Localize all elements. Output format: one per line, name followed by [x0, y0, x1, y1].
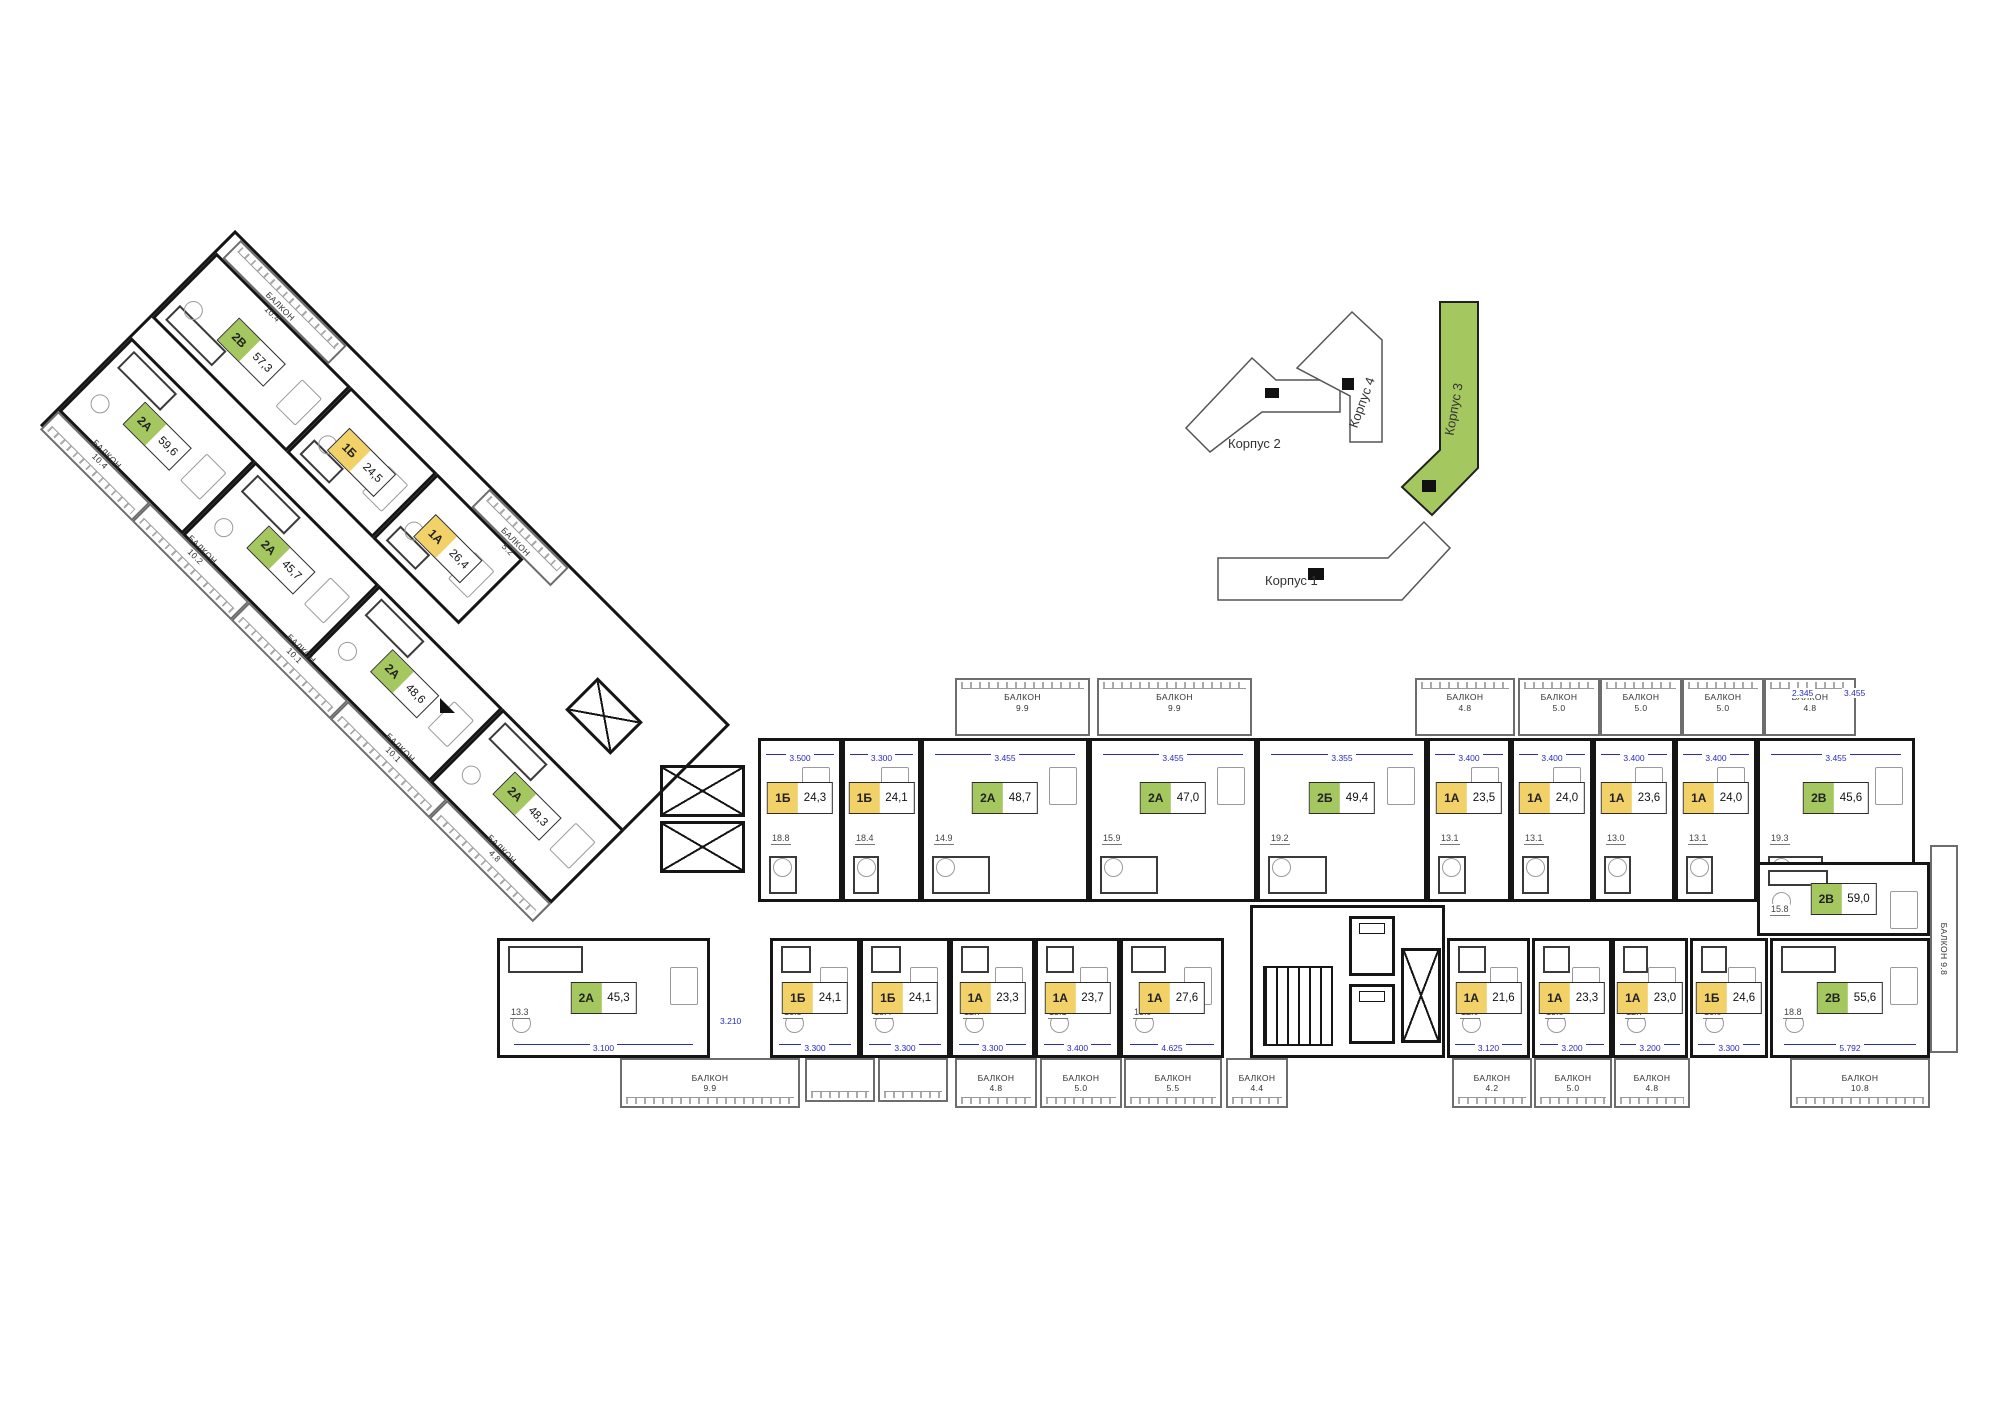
unit-cell-top-0[interactable]: 3.50018.81Б24,3	[758, 738, 842, 902]
bathroom-partition	[1686, 856, 1713, 894]
bathroom-partition	[508, 946, 583, 973]
unit-type-badge: 2А48,6	[370, 649, 440, 719]
balcony-label: БАЛКОН 9.8	[1939, 923, 1949, 976]
balcony: БАЛКОН4.2	[1452, 1058, 1532, 1108]
unit-area: 45,6	[1834, 783, 1868, 813]
dimension-label: 3.120	[1455, 1038, 1521, 1050]
unit-type-code: 2В	[1804, 783, 1834, 813]
minimap-core-icon	[1422, 480, 1436, 492]
bathroom-partition	[1701, 946, 1727, 973]
balcony-label: БАЛКОН5.0	[1602, 692, 1680, 713]
unit-type-code: 1Б	[783, 983, 813, 1013]
bathroom-partition	[241, 475, 301, 535]
bathroom-partition	[853, 856, 879, 894]
unit-area: 23,0	[1648, 983, 1682, 1013]
unit-cell-top-7[interactable]: 3.40013.01А23,6	[1593, 738, 1675, 902]
unit-type-code: 1А	[1540, 983, 1570, 1013]
room-area-label: 13.3	[510, 1007, 530, 1019]
unit-type-badge: 2В55,6	[1817, 982, 1883, 1014]
minimap-building-korpus-4[interactable]	[1297, 312, 1382, 442]
unit-area: 24,6	[1727, 983, 1761, 1013]
dimension-label: 3.210	[718, 1016, 743, 1026]
unit-area: 23,7	[1075, 983, 1109, 1013]
unit-area: 24,1	[879, 783, 913, 813]
dimension-label: 3.300	[1698, 1038, 1760, 1050]
dimension-label: 3.200	[1620, 1038, 1680, 1050]
room-area-label: 19.3	[1770, 833, 1790, 845]
unit-type-code: 1Б	[1697, 983, 1727, 1013]
unit-type-code: 2А	[571, 983, 601, 1013]
unit-type-badge: 2А59,6	[122, 401, 192, 471]
unit-cell-bottom-9[interactable]: 3.30018.01Б24,6	[1690, 938, 1768, 1058]
dimension-label: 3.300	[779, 1038, 851, 1050]
bathroom-partition	[1543, 946, 1570, 973]
unit-area: 48,7	[1003, 783, 1037, 813]
unit-type-badge: 1А23,6	[1601, 782, 1667, 814]
unit-type-badge: 2А45,7	[246, 525, 316, 595]
unit-cell-top-3[interactable]: 3.45515.92А47,0	[1089, 738, 1257, 902]
dimension-label: 3.455	[1771, 748, 1902, 760]
room-area-label: 13.0	[1606, 833, 1626, 845]
unit-cell-top-1[interactable]: 3.30018.41Б24,1	[842, 738, 921, 902]
bathroom-partition	[871, 946, 901, 973]
unit-type-badge: 1Б24,1	[782, 982, 848, 1014]
balcony-label: БАЛКОН9.9	[1099, 692, 1250, 713]
balcony: БАЛКОН5.0	[1600, 678, 1682, 736]
unit-area: 23,6	[1632, 783, 1666, 813]
bathroom-partition	[1100, 856, 1158, 894]
unit-cell-bottom-4[interactable]: 3.40013.11А23,7	[1035, 938, 1120, 1058]
room-area-label: 18.8	[1783, 1007, 1803, 1019]
unit-type-badge: 2А47,0	[1140, 782, 1206, 814]
unit-type-code: 1А	[1045, 983, 1075, 1013]
unit-cell-bottom-3[interactable]: 3.30012.71А23,3	[950, 938, 1035, 1058]
balcony-label: БАЛКОН5.5	[1126, 1073, 1220, 1094]
balcony-label: БАЛКОН4.4	[1228, 1073, 1286, 1094]
balcony: БАЛКОН4.4	[1226, 1058, 1288, 1108]
unit-type-badge: 1Б24,6	[1696, 982, 1762, 1014]
unit-cell-right[interactable]: 15.82В59,0	[1757, 862, 1930, 936]
unit-type-code: 2В	[1811, 884, 1841, 914]
dimension-label: 3.400	[1601, 748, 1666, 760]
unit-cell-top-4[interactable]: 3.35519.22Б49,4	[1257, 738, 1427, 902]
dimension-label: 3.300	[959, 1038, 1027, 1050]
balcony: БАЛКОН4.8	[955, 1058, 1037, 1108]
unit-type-badge: 1А24,0	[1683, 782, 1749, 814]
balcony-label: БАЛКОН4.8	[1616, 1073, 1688, 1094]
elevator-icon	[1349, 916, 1395, 976]
balcony-label: БАЛКОН5.0	[1042, 1073, 1120, 1094]
bathroom-partition	[1131, 946, 1166, 973]
site-plan-minimap: Корпус 2 Корпус 4 Корпус 3 Корпус 1	[1170, 290, 1570, 620]
bathroom-partition	[1604, 856, 1631, 894]
bathroom-partition	[117, 351, 177, 411]
balcony-label: БАЛКОН5.0	[1536, 1073, 1610, 1094]
unit-type-code: 1А	[1602, 783, 1632, 813]
unit-cell-bottom-1[interactable]: 3.30018.81Б24,1	[770, 938, 860, 1058]
unit-type-code: 2А	[973, 783, 1003, 813]
unit-type-code: 1А	[1140, 983, 1170, 1013]
unit-type-code: 1А	[960, 983, 990, 1013]
dimension-label: 3.400	[1044, 1038, 1112, 1050]
room-area-label: 13.1	[1688, 833, 1708, 845]
unit-type-code: 1А	[1456, 983, 1486, 1013]
balcony: БАЛКОН4.8	[1614, 1058, 1690, 1108]
bathroom-partition	[932, 856, 990, 894]
balcony: БАЛКОН5.0	[1534, 1058, 1612, 1108]
dimension-label: 3.455	[935, 748, 1074, 760]
unit-type-code: 1А	[1618, 983, 1648, 1013]
unit-area: 24,0	[1550, 783, 1584, 813]
balcony-label: БАЛКОН5.0	[1684, 692, 1762, 713]
unit-type-code: 1А	[1437, 783, 1467, 813]
dimension-label: 3.500	[766, 748, 833, 760]
room-area-label: 13.1	[1524, 833, 1544, 845]
dimension-label: 3.300	[850, 748, 913, 760]
balcony-label: БАЛКОН5.0	[1520, 692, 1598, 713]
dimension-label: 4.625	[1130, 1038, 1214, 1050]
minimap-core-icon	[1265, 388, 1279, 398]
balcony-label: БАЛКОН4.2	[1454, 1073, 1530, 1094]
stairs-icon	[1263, 966, 1333, 1046]
diagonal-wing: БАЛКОН10.4БАЛКОН5.22В57,31Б24,51А26,42А5…	[40, 230, 730, 920]
bathroom-partition	[1522, 856, 1549, 894]
unit-type-badge: 2А48,7	[972, 782, 1038, 814]
unit-type-badge: 2А48,3	[492, 771, 562, 841]
balcony: БАЛКОН9.9	[1097, 678, 1252, 736]
balcony: БАЛКОН 9.8	[1930, 845, 1958, 1053]
bathroom-partition	[781, 946, 811, 973]
minimap-core-icon	[1342, 378, 1354, 390]
unit-area: 23,3	[1570, 983, 1604, 1013]
unit-type-code: 1Б	[768, 783, 798, 813]
stair-core	[1250, 905, 1445, 1058]
bathroom-partition	[365, 598, 425, 658]
unit-type-badge: 1Б24,1	[872, 982, 938, 1014]
unit-cell-bottom-2[interactable]: 3.30018.41Б24,1	[860, 938, 950, 1058]
dimension-label: 3.300	[869, 1038, 941, 1050]
balcony-label: БАЛКОН9.9	[957, 692, 1088, 713]
elevator-shaft-icon	[660, 821, 745, 873]
bathroom-partition	[1623, 946, 1648, 973]
unit-area: 59,0	[1841, 884, 1875, 914]
unit-type-badge: 1Б24,1	[848, 782, 914, 814]
balcony-label: БАЛКОН9.9	[622, 1073, 798, 1094]
dimension-label: 3.200	[1540, 1038, 1604, 1050]
bathroom-partition	[165, 305, 226, 366]
unit-type-badge: 1Б24,3	[767, 782, 833, 814]
unit-area: 24,1	[903, 983, 937, 1013]
balcony: БАЛКОН5.0	[1518, 678, 1600, 736]
minimap-label-korpus-2: Корпус 2	[1228, 436, 1281, 451]
floor-plan-canvas: Корпус 2 Корпус 4 Корпус 3 Корпус 1 БАЛК…	[0, 0, 2000, 1415]
balcony-label: БАЛКОН4.8	[1417, 692, 1513, 713]
bathroom-partition	[1268, 856, 1327, 894]
unit-type-badge: 1А27,6	[1139, 982, 1205, 1014]
bathroom-partition	[1046, 946, 1074, 973]
balcony-label: БАЛКОН10.8	[1792, 1073, 1928, 1094]
minimap-building-korpus-3-active[interactable]	[1402, 302, 1478, 515]
balcony: БАЛКОН9.9	[620, 1058, 800, 1108]
unit-type-badge: 1А23,7	[1044, 982, 1110, 1014]
unit-area: 23,3	[990, 983, 1024, 1013]
dimension-label: 3.400	[1519, 748, 1584, 760]
balcony	[878, 1058, 948, 1102]
dimension-label: 3.100	[514, 1038, 692, 1050]
unit-cell-bottom-6[interactable]: 3.12012.01А21,6	[1447, 938, 1530, 1058]
unit-type-badge: 1А23,5	[1436, 782, 1502, 814]
unit-type-badge: 2Б49,4	[1309, 782, 1375, 814]
balcony-label: БАЛКОН4.8	[957, 1073, 1035, 1094]
unit-area: 49,4	[1340, 783, 1374, 813]
elevator-shaft-icon	[660, 765, 745, 817]
dimension-label: 3.455	[1103, 748, 1242, 760]
unit-type-code: 1А	[1520, 783, 1550, 813]
room-area-label: 15.9	[1102, 833, 1122, 845]
unit-type-code: 2А	[1141, 783, 1171, 813]
entrance-arrow-icon	[440, 698, 455, 713]
unit-type-badge: 1А21,6	[1455, 982, 1521, 1014]
bathroom-partition	[961, 946, 989, 973]
minimap-label-korpus-1: Корпус 1	[1265, 573, 1318, 588]
unit-area: 24,3	[798, 783, 832, 813]
room-area-label: 14.9	[934, 833, 954, 845]
room-area-label: 18.4	[855, 833, 875, 845]
balcony: БАЛКОН9.9	[955, 678, 1090, 736]
unit-cell-top-6[interactable]: 3.40013.11А24,0	[1511, 738, 1593, 902]
unit-type-code: 2Б	[1310, 783, 1340, 813]
dimension-label: 2.345	[1790, 688, 1815, 698]
unit-cell-top-8[interactable]: 3.40013.11А24,0	[1675, 738, 1757, 902]
bathroom-partition	[1438, 856, 1466, 894]
bathroom-partition	[1781, 946, 1836, 973]
unit-type-code: 1Б	[849, 783, 879, 813]
bathroom-partition	[769, 856, 797, 894]
unit-type-code: 2В	[1818, 983, 1848, 1013]
unit-area: 47,0	[1171, 783, 1205, 813]
unit-type-badge: 2В57,3	[217, 317, 287, 387]
unit-type-badge: 1А23,0	[1617, 982, 1683, 1014]
unit-area: 24,1	[813, 983, 847, 1013]
minimap-building-korpus-1[interactable]	[1218, 522, 1450, 600]
unit-cell-bottom-5[interactable]: 4.62513.91А27,6	[1120, 938, 1224, 1058]
unit-area: 24,0	[1714, 783, 1748, 813]
unit-area: 55,6	[1848, 983, 1882, 1013]
unit-cell-bottom-8[interactable]: 3.20012.71А23,0	[1612, 938, 1688, 1058]
unit-cell-bottom-0[interactable]: 3.10013.32А45,3	[497, 938, 710, 1058]
unit-type-badge: 1А23,3	[1539, 982, 1605, 1014]
unit-type-badge: 1А24,0	[1519, 782, 1585, 814]
unit-cell-top-2[interactable]: 3.45514.92А48,7	[921, 738, 1089, 902]
dimension-label: 3.455	[1842, 688, 1867, 698]
unit-type-badge: 2А45,3	[570, 982, 636, 1014]
elevator-icon	[1349, 984, 1395, 1044]
balcony: БАЛКОН4.8	[1415, 678, 1515, 736]
shaft-icon	[1401, 948, 1441, 1043]
room-area-label: 13.1	[1440, 833, 1460, 845]
bathroom-partition	[489, 722, 548, 781]
balcony: БАЛКОН5.0	[1682, 678, 1764, 736]
bathroom-partition	[1458, 946, 1486, 973]
unit-area: 23,5	[1467, 783, 1501, 813]
room-area-label: 18.8	[771, 833, 791, 845]
unit-cell-bottom-10[interactable]: 5.79218.82В55,6	[1770, 938, 1930, 1058]
unit-type-badge: 1А23,3	[959, 982, 1025, 1014]
unit-type-code: 1А	[1684, 783, 1714, 813]
balcony: БАЛКОН10.8	[1790, 1058, 1930, 1108]
balcony: БАЛКОН5.5	[1124, 1058, 1222, 1108]
unit-cell-bottom-7[interactable]: 3.20013.01А23,3	[1532, 938, 1612, 1058]
unit-type-badge: 2В59,0	[1810, 883, 1876, 915]
room-area-label: 19.2	[1270, 833, 1290, 845]
room-area-label: 15.8	[1770, 904, 1790, 916]
dimension-label: 3.355	[1271, 748, 1412, 760]
balcony: БАЛКОН4.8	[1764, 678, 1856, 736]
unit-cell-top-5[interactable]: 3.40013.11А23,5	[1427, 738, 1511, 902]
unit-area: 45,3	[601, 983, 635, 1013]
unit-area: 27,6	[1170, 983, 1204, 1013]
dimension-label: 3.400	[1435, 748, 1502, 760]
dimension-label: 3.400	[1683, 748, 1748, 760]
unit-type-badge: 2В45,6	[1803, 782, 1869, 814]
balcony	[805, 1058, 875, 1102]
dimension-label: 5.792	[1784, 1038, 1916, 1050]
unit-area: 21,6	[1486, 983, 1520, 1013]
unit-type-code: 1Б	[873, 983, 903, 1013]
balcony: БАЛКОН5.0	[1040, 1058, 1122, 1108]
